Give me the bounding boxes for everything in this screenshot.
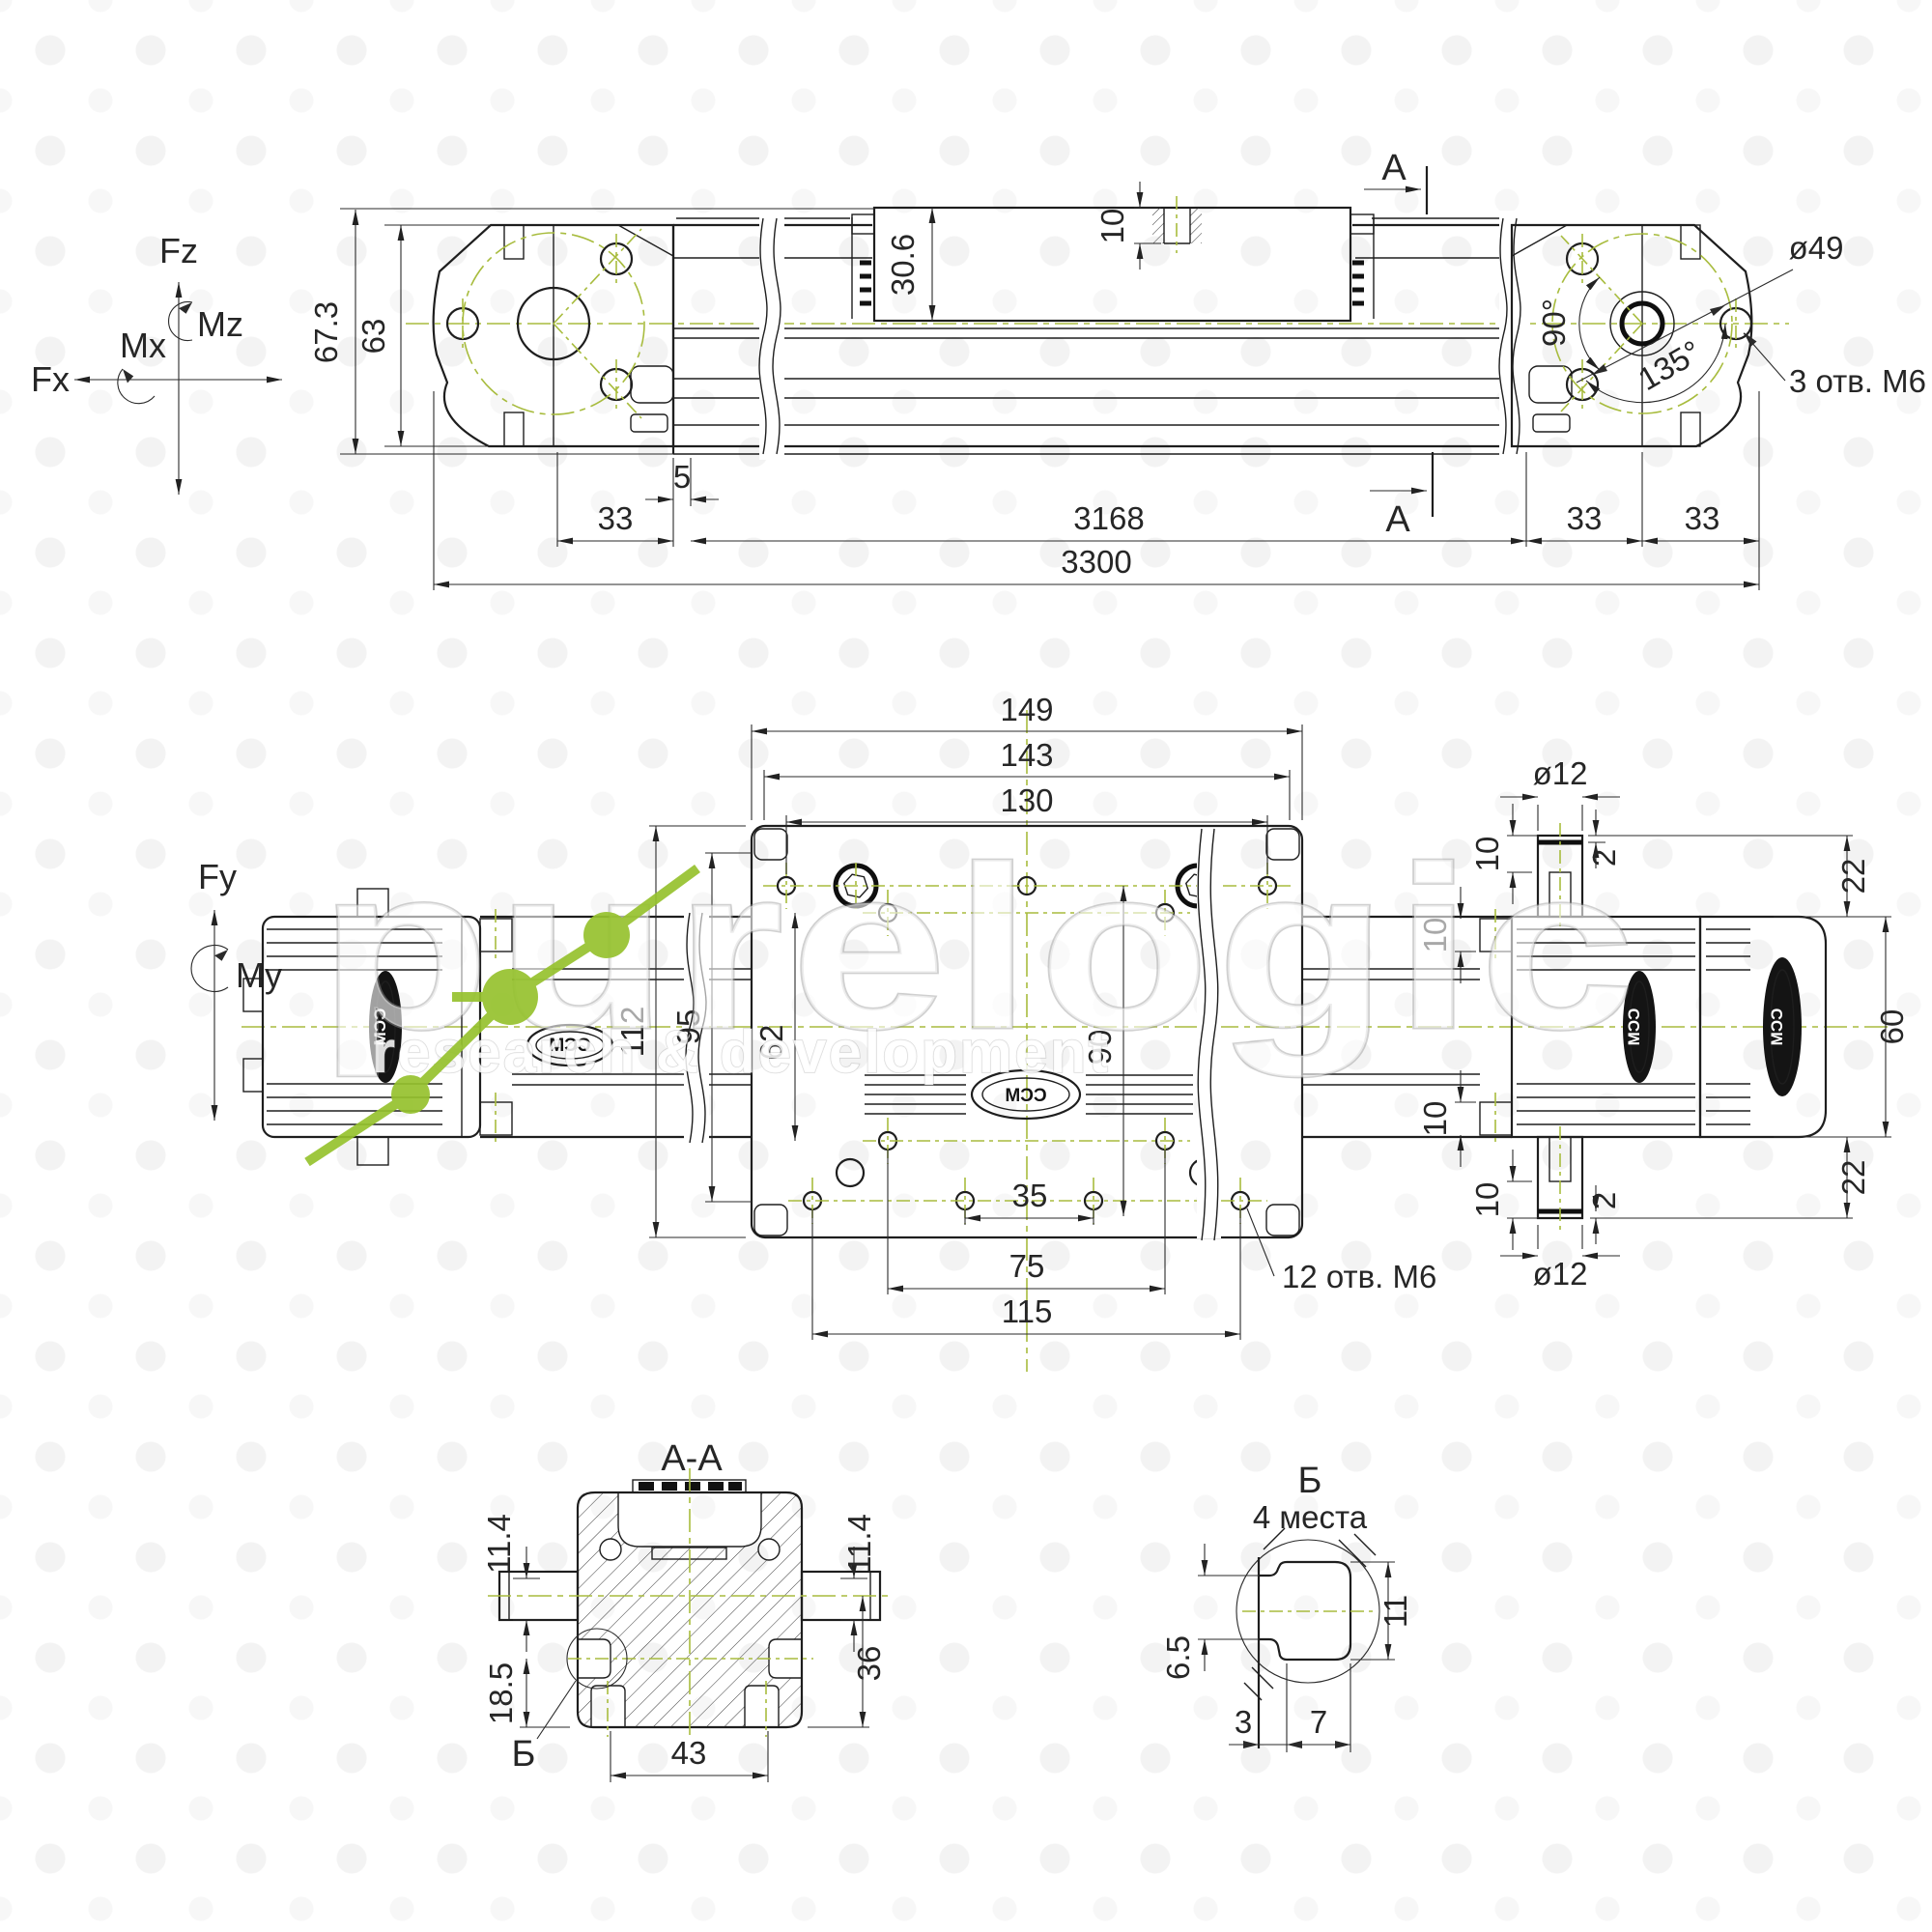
- dim-33-right-1: 33: [1567, 500, 1603, 536]
- dim-67-3: 67.3: [308, 301, 344, 363]
- dim-30-6: 30.6: [885, 234, 921, 296]
- force-axes-xz: Fz Mz Mx Fx: [31, 231, 282, 495]
- axis-mx-label: Mx: [120, 326, 166, 365]
- dim-2-bottom: 2: [1586, 1192, 1622, 1209]
- dim-5: 5: [673, 459, 691, 495]
- dim-11-4-left: 11.4: [481, 1514, 517, 1574]
- dim-75: 75: [1009, 1248, 1045, 1284]
- note-12-holes-m6: 12 отв. M6: [1282, 1259, 1436, 1294]
- dim-36: 36: [851, 1646, 887, 1682]
- dim-22-bottom: 22: [1835, 1160, 1871, 1196]
- dim-10-thread: 10: [1094, 209, 1130, 244]
- dim-43: 43: [671, 1735, 707, 1771]
- dim-3300: 3300: [1061, 544, 1131, 580]
- dim-63: 63: [355, 319, 391, 355]
- drawing-canvas: Fz Mz Mx Fx: [0, 0, 1932, 1932]
- section-aa-title: A-A: [661, 1438, 723, 1479]
- left-flange: [434, 225, 673, 446]
- dim-10-bottom-1: 10: [1417, 1101, 1453, 1137]
- section-label-a-top: A: [1381, 148, 1406, 188]
- detail-b-places-note: 4 места: [1253, 1499, 1368, 1535]
- shaft-stub-bottom: [1538, 1126, 1582, 1231]
- molecule-dot-small: [391, 1075, 430, 1114]
- section-marker-a-top: A: [1364, 148, 1427, 214]
- detail-b: Б 4 места 11 6.5 3 7: [1160, 1461, 1413, 1752]
- side-view-dimensions: 67.3 63 30.6 10 5 33 3168 33 33 3300: [308, 182, 1759, 590]
- detail-b-dimensions: 11 6.5 3 7: [1160, 1544, 1413, 1752]
- dim-d12-bottom: ø12: [1533, 1256, 1588, 1292]
- section-marker-a-bottom: A: [1370, 452, 1433, 540]
- section-label-a-bottom: A: [1385, 499, 1410, 540]
- axis-my-label: My: [236, 955, 282, 995]
- dim-115: 115: [1002, 1293, 1053, 1329]
- dim-130: 130: [1000, 782, 1053, 818]
- dim-149: 149: [1000, 692, 1053, 727]
- dim-angle-90: 90°: [1536, 298, 1572, 347]
- detail-b-mark-label: Б: [512, 1734, 536, 1775]
- detail-b-title: Б: [1298, 1461, 1322, 1501]
- dim-d12-top: ø12: [1533, 755, 1588, 791]
- dim-11: 11: [1378, 1595, 1413, 1628]
- dim-6-5: 6.5: [1160, 1635, 1196, 1680]
- dim-11-4-right: 11.4: [841, 1514, 877, 1574]
- side-view: 90° 135° ø49 3 отв. M6 A: [308, 148, 1926, 590]
- dim-22-top: 22: [1835, 859, 1871, 895]
- section-aa: A-A Б 11.4 11.4 18.5 36 43: [481, 1438, 894, 1782]
- force-axes-y: Fy My: [191, 857, 282, 1121]
- dim-33-right-2: 33: [1685, 500, 1720, 536]
- dim-10-bottom-2: 10: [1469, 1182, 1505, 1218]
- dim-3168: 3168: [1073, 500, 1144, 536]
- molecule-dot-medium: [583, 912, 630, 958]
- dim-143: 143: [1000, 737, 1053, 773]
- axis-fy-label: Fy: [198, 857, 237, 896]
- dim-7: 7: [1310, 1704, 1327, 1740]
- ccm-logo-text-right-b: CCM: [1768, 1009, 1786, 1046]
- mx-arrowhead-icon: [120, 366, 134, 383]
- dim-60: 60: [1874, 1009, 1910, 1045]
- dim-35: 35: [1012, 1178, 1048, 1213]
- dim-33-left: 33: [598, 500, 634, 536]
- my-arrowhead-icon: [214, 948, 231, 963]
- drawing-page: Fz Mz Mx Fx: [0, 0, 1932, 1932]
- axis-fz-label: Fz: [159, 231, 198, 270]
- molecule-dot-large: [482, 969, 538, 1025]
- note-3-holes-m6: 3 отв. M6: [1789, 363, 1926, 399]
- dim-18-5: 18.5: [483, 1662, 519, 1724]
- dim-3: 3: [1235, 1704, 1252, 1740]
- axis-fx-label: Fx: [31, 359, 70, 399]
- mx-rotation-icon: [118, 369, 155, 404]
- right-flange: 90° 135° ø49 3 отв. M6: [1512, 225, 1926, 446]
- dim-bolt-circle-d49: ø49: [1789, 230, 1844, 266]
- ccm-logo-text-center: CCM: [1005, 1086, 1046, 1106]
- axis-mz-label: Mz: [197, 304, 243, 344]
